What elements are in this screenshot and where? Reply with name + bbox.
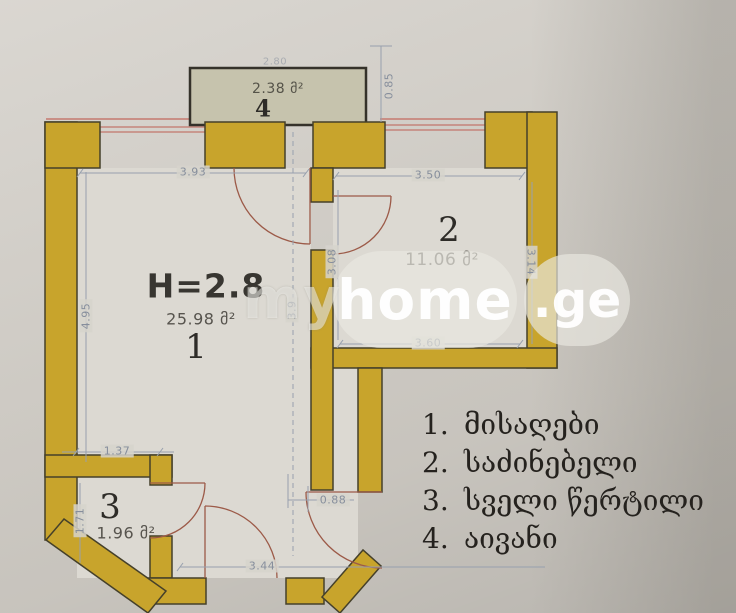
dim-room2-left: 3.08 [326,246,339,279]
dim-right: 3.14 [525,246,538,279]
legend-label: სველი წერტილი [464,484,704,517]
room2-area: 11.06 მ² [405,250,479,270]
dim-balcony-width: 2.80 [260,57,290,68]
legend-number: 3. [422,484,464,517]
dim-room3-left: 1.71 [74,505,87,538]
room3-area: 1.96 მ² [97,524,156,543]
legend-item-4: 4. აივანი [422,522,704,560]
room1-number: 1 [185,327,207,367]
dim-room2-bottom: 3.60 [412,337,445,350]
dim-top-left: 3.93 [177,166,210,179]
legend-number: 1. [422,408,464,441]
room2-number: 2 [438,210,460,250]
room4-number: 4 [255,96,271,123]
dim-balcony-depth: 0.85 [383,70,396,103]
room1-height-note: H=2.8 [147,267,266,306]
legend-label: აივანი [464,522,558,555]
dim-offset: 0.88 [317,494,350,507]
legend-label: საძინებელი [464,446,638,479]
legend-item-3: 3. სველი წერტილი [422,484,704,522]
dim-niche: 1.37 [101,445,134,458]
legend-item-1: 1. მისაღები [422,408,704,446]
room3-number: 3 [99,487,121,527]
legend-item-2: 2. საძინებელი [422,446,704,484]
room-legend: 1. მისაღები 2. საძინებელი 3. სველი წერტი… [422,408,704,560]
floorplan-photo: 3.93 3.50 4.95 3.14 3.08 3.60 3.9 1.37 1… [0,0,736,613]
legend-number: 2. [422,446,464,479]
dim-middle: 3.9 [286,298,299,323]
legend-label: მისაღები [464,408,600,441]
room1-area: 25.98 მ² [166,310,236,329]
dim-top-right: 3.50 [412,169,445,182]
dim-bottom: 3.44 [246,560,279,573]
dim-left: 4.95 [80,300,93,333]
legend-number: 4. [422,522,464,555]
